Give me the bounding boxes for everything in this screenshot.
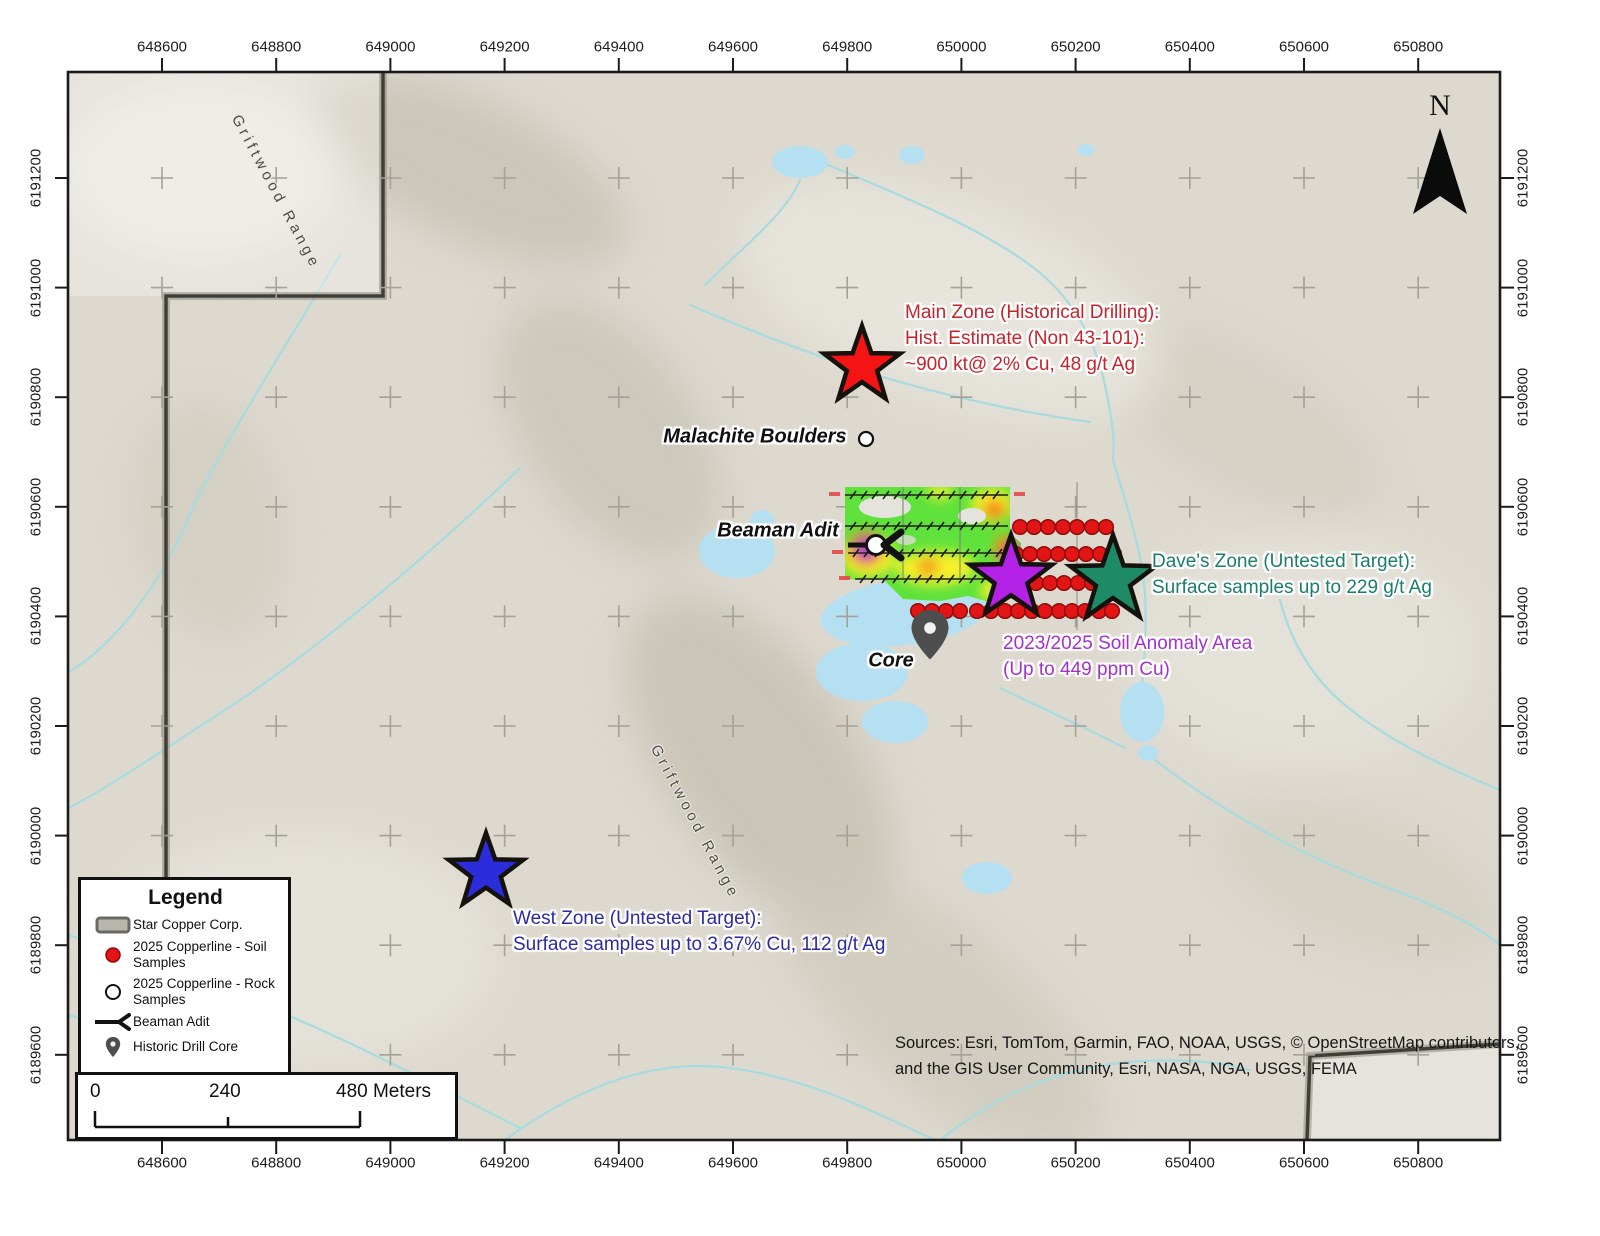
- soil-sample-dot: [1013, 520, 1028, 535]
- legend-item-rock-samples: 2025 Copperline - Rock Samples: [93, 976, 278, 1008]
- soil-sample-dot: [1057, 576, 1072, 591]
- core-pin-icon: [93, 1036, 133, 1058]
- soil-sample-dot: [1041, 520, 1056, 535]
- soil-sample-dot: [970, 604, 985, 619]
- soil-sample-dot: [1056, 520, 1071, 535]
- legend-item-historic-core: Historic Drill Core: [93, 1036, 278, 1058]
- soil-sample-dot: [1079, 547, 1094, 562]
- rock-sample-dot: [859, 432, 873, 446]
- legend-item-property: Star Copper Corp.: [93, 916, 278, 934]
- legend-title: Legend: [93, 886, 278, 910]
- legend-item-soil-samples: 2025 Copperline - Soil Samples: [93, 939, 278, 971]
- soil-sample-icon: [93, 945, 133, 965]
- legend-item-beaman-adit: Beaman Adit: [93, 1013, 278, 1031]
- soil-sample-dot: [1043, 576, 1058, 591]
- soil-sample-dot: [1070, 520, 1085, 535]
- scale-bar-bracket: [78, 1075, 455, 1137]
- rock-sample-icon: [93, 982, 133, 1002]
- soil-sample-dot: [1099, 520, 1114, 535]
- soil-sample-dot: [1027, 520, 1042, 535]
- soil-sample-dot: [1037, 547, 1052, 562]
- sources-attribution: Sources: Esri, TomTom, Garmin, FAO, NOAA…: [895, 1031, 1519, 1082]
- scale-bar: 0 240 480 Meters: [75, 1072, 458, 1140]
- soil-sample-dot: [1038, 604, 1053, 619]
- soil-sample-dot: [1023, 547, 1038, 562]
- map-figure: 6486006486006488006488006490006490006492…: [0, 0, 1600, 1236]
- adit-line-icon: [93, 1013, 133, 1031]
- soil-sample-dot: [953, 604, 968, 619]
- soil-sample-dot: [1085, 520, 1100, 535]
- soil-sample-dot: [1105, 604, 1120, 619]
- soil-sample-dot: [1065, 547, 1080, 562]
- soil-sample-dot: [1051, 547, 1066, 562]
- property-polygon-icon: [93, 916, 133, 934]
- legend: Legend Star Copper Corp. 2025 Copperline…: [78, 877, 291, 1075]
